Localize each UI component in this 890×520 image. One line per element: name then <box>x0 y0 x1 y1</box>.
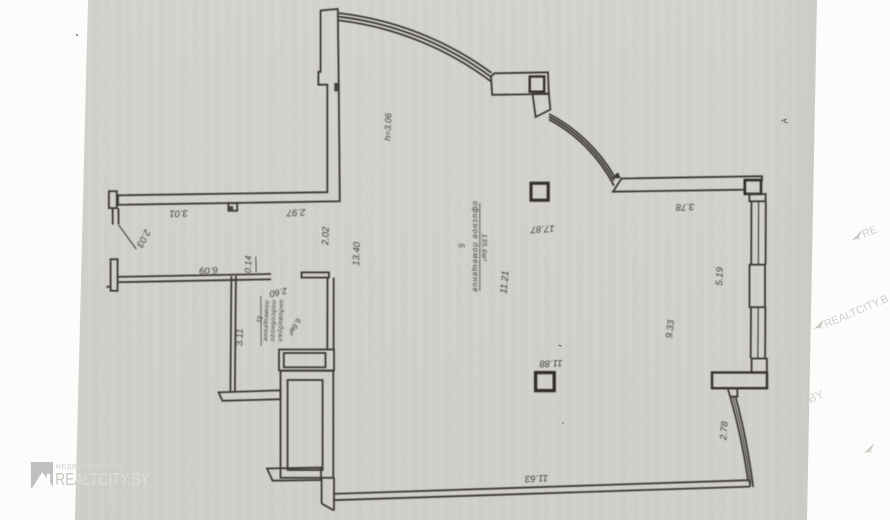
svg-text:h=3.06: h=3.06 <box>383 113 394 141</box>
svg-text:2.02: 2.02 <box>320 226 332 247</box>
svg-text:2.78: 2.78 <box>718 420 731 441</box>
svg-text:офисное помещение: офисное помещение <box>471 201 480 293</box>
svg-text:11.63: 11.63 <box>524 472 548 484</box>
svg-text:3.01: 3.01 <box>169 207 188 219</box>
svg-text:3.78: 3.78 <box>675 201 695 213</box>
svg-text:0.14: 0.14 <box>243 255 254 273</box>
svg-text:2.97: 2.97 <box>286 206 307 218</box>
svg-text:11: 11 <box>255 315 263 323</box>
svg-text:9.33: 9.33 <box>664 319 677 339</box>
svg-text:5: 5 <box>457 243 466 248</box>
svg-text:13.40: 13.40 <box>351 241 363 266</box>
svg-text:REALTCITY.B: REALTCITY.B <box>822 293 890 331</box>
svg-text:135.6м²: 135.6м² <box>480 234 489 262</box>
svg-text:5.19: 5.19 <box>714 266 726 286</box>
svg-text:11.21: 11.21 <box>499 270 512 294</box>
svg-text:17.87: 17.87 <box>530 222 555 234</box>
svg-text:3.11: 3.11 <box>234 328 246 346</box>
svg-text:RE: RE <box>860 224 879 241</box>
svg-text:индивидуал.: индивидуал. <box>276 300 286 345</box>
svg-text:11.88: 11.88 <box>539 357 563 369</box>
svg-text:6.09: 6.09 <box>198 264 218 276</box>
